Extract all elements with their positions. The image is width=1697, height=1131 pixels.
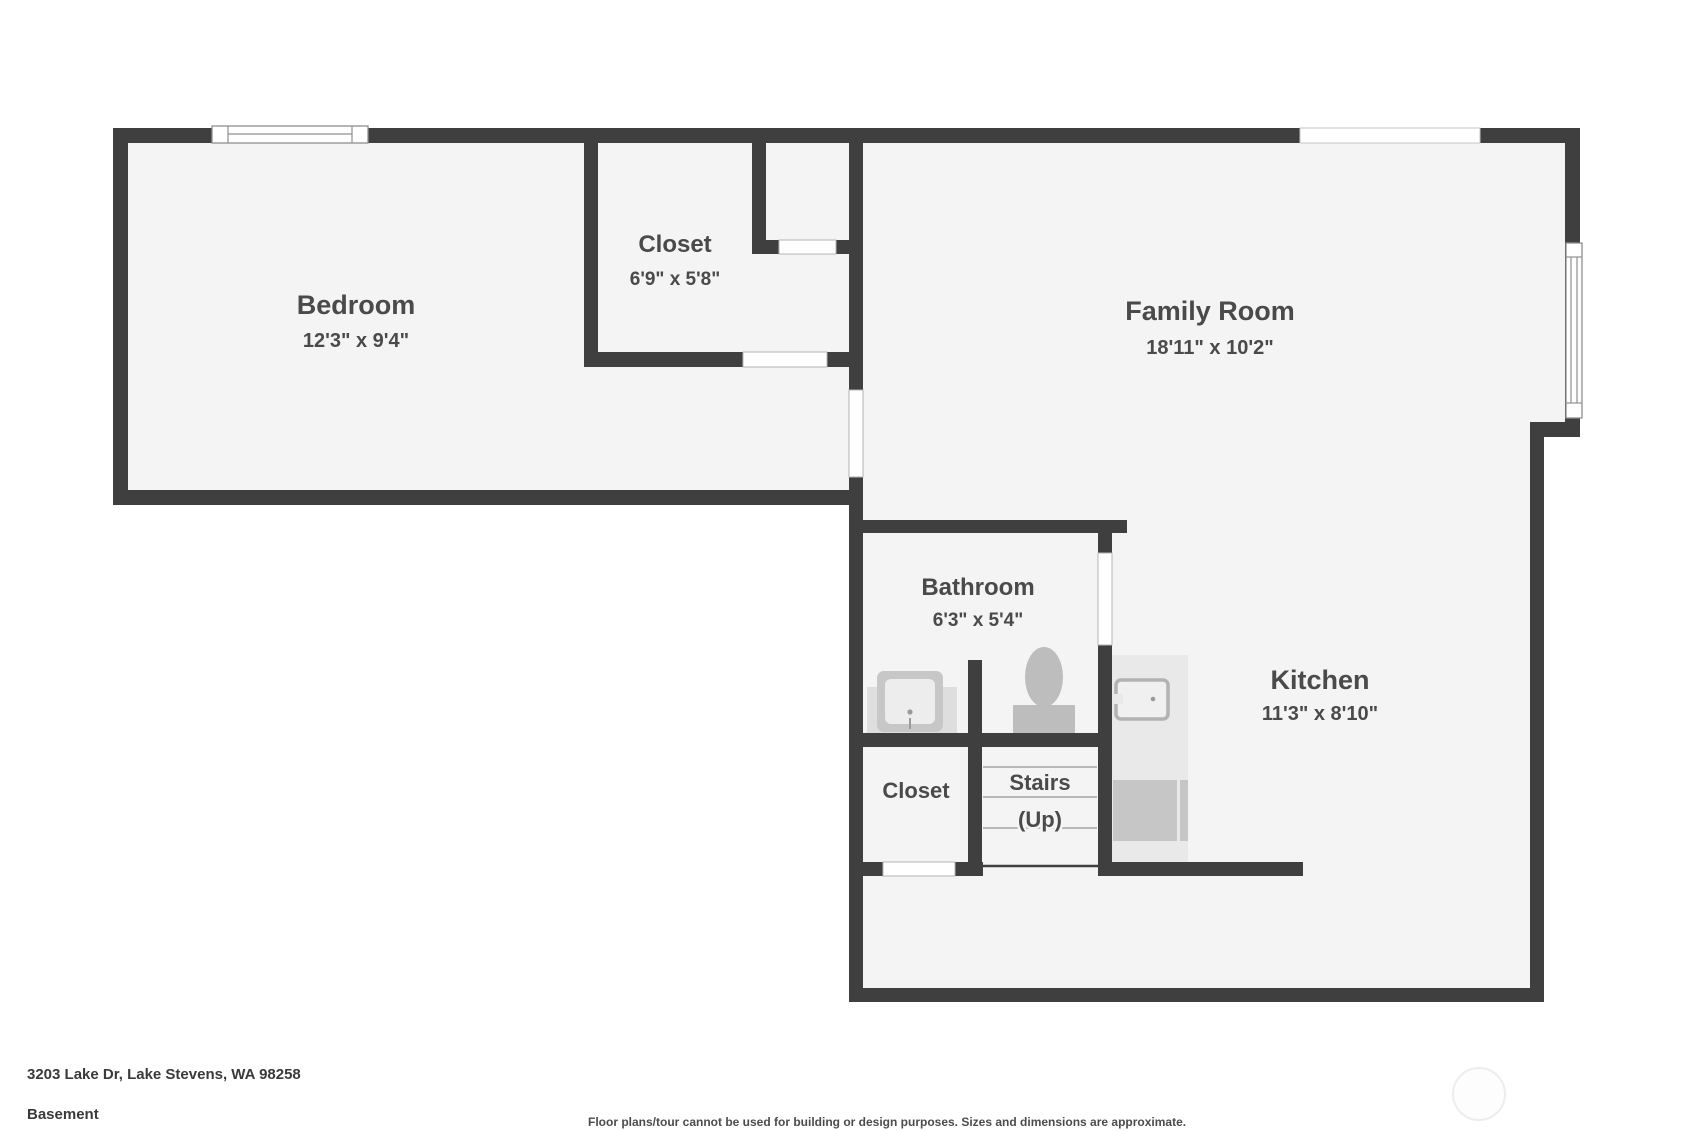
kitchen-dimensions: 11'3" x 8'10"	[1262, 703, 1378, 725]
family-room-dimensions: 18'11" x 10'2"	[1146, 337, 1273, 359]
wall-middle-upper	[849, 128, 863, 390]
kitchen-sink-icon	[1116, 680, 1168, 719]
upper-closet-dimensions: 6'9" x 5'8"	[630, 269, 720, 290]
wall-right-lower	[1530, 422, 1544, 1002]
watermark-logo-circle	[1452, 1067, 1506, 1121]
toilet-tank	[1013, 705, 1075, 733]
bathroom-dimensions: 6'3" x 5'4"	[933, 610, 1023, 631]
floor-plan-page: Bedroom 12'3" x 9'4" Closet 6'9" x 5'8" …	[0, 0, 1697, 1131]
door-opening-bathroom	[1098, 553, 1112, 645]
family-room-floor	[863, 143, 1565, 430]
wall-nook-bottom-b	[836, 240, 849, 254]
wall-closet-bottom-b	[827, 352, 849, 367]
kitchen-hall-floor	[863, 425, 1530, 988]
wall-bathroom-top	[849, 520, 1127, 533]
stove-side-panel	[1180, 780, 1188, 841]
stove-icon	[1113, 780, 1177, 841]
door-opening-lower-closet	[883, 862, 955, 876]
family-room-wall-opening	[1300, 128, 1480, 143]
floor-plan-drawing: Bedroom 12'3" x 9'4" Closet 6'9" x 5'8" …	[0, 0, 1697, 1131]
lower-closet-label: Closet	[882, 778, 950, 803]
wall-bathroom-right-a	[1098, 533, 1112, 553]
bedroom-floor	[128, 143, 849, 490]
wall-bottom	[849, 988, 1544, 1002]
wall-kitchen-bottom	[1098, 862, 1303, 876]
wall-nook-left	[752, 143, 766, 254]
wall-closet-left	[584, 143, 598, 367]
wall-left	[113, 128, 128, 505]
bathroom-sink-basin	[885, 679, 935, 724]
kitchen-label: Kitchen	[1270, 665, 1369, 695]
toilet-icon	[1025, 647, 1063, 707]
wall-nook-bottom-a	[752, 240, 779, 254]
door-opening-bedroom-family	[849, 390, 863, 477]
bedroom-dimensions: 12'3" x 9'4"	[303, 330, 409, 352]
upper-closet-label: Closet	[638, 231, 711, 258]
wall-closet-stairs-divider	[968, 747, 982, 876]
wall-bathroom-right-b	[1098, 645, 1112, 876]
property-address: 3203 Lake Dr, Lake Stevens, WA 98258	[27, 1066, 301, 1083]
disclaimer-text: Floor plans/tour cannot be used for buil…	[588, 1115, 1186, 1129]
family-room-label: Family Room	[1125, 296, 1295, 326]
stairs-label: Stairs	[1009, 770, 1070, 795]
door-opening-upper-closet	[743, 352, 827, 367]
wall-hall-boundary-b	[955, 862, 983, 876]
wall-hall-boundary-a	[849, 862, 883, 876]
wall-bath-partition	[968, 660, 982, 733]
floor-level-label: Basement	[27, 1106, 99, 1123]
wall-bedroom-bottom	[113, 490, 863, 505]
wall-closet-bottom-a	[584, 352, 743, 367]
wall-bathroom-bottom	[849, 733, 1100, 747]
bathroom-sink-drain	[907, 709, 912, 714]
kitchen-sink-drain	[1151, 697, 1156, 702]
door-opening-nook	[779, 240, 836, 254]
bedroom-window	[212, 126, 368, 143]
bathroom-label: Bathroom	[921, 574, 1034, 601]
bedroom-label: Bedroom	[297, 290, 416, 320]
kitchen-sink-notch	[1114, 694, 1123, 704]
family-room-window	[1566, 243, 1582, 418]
stairs-direction-label: (Up)	[1018, 807, 1062, 832]
